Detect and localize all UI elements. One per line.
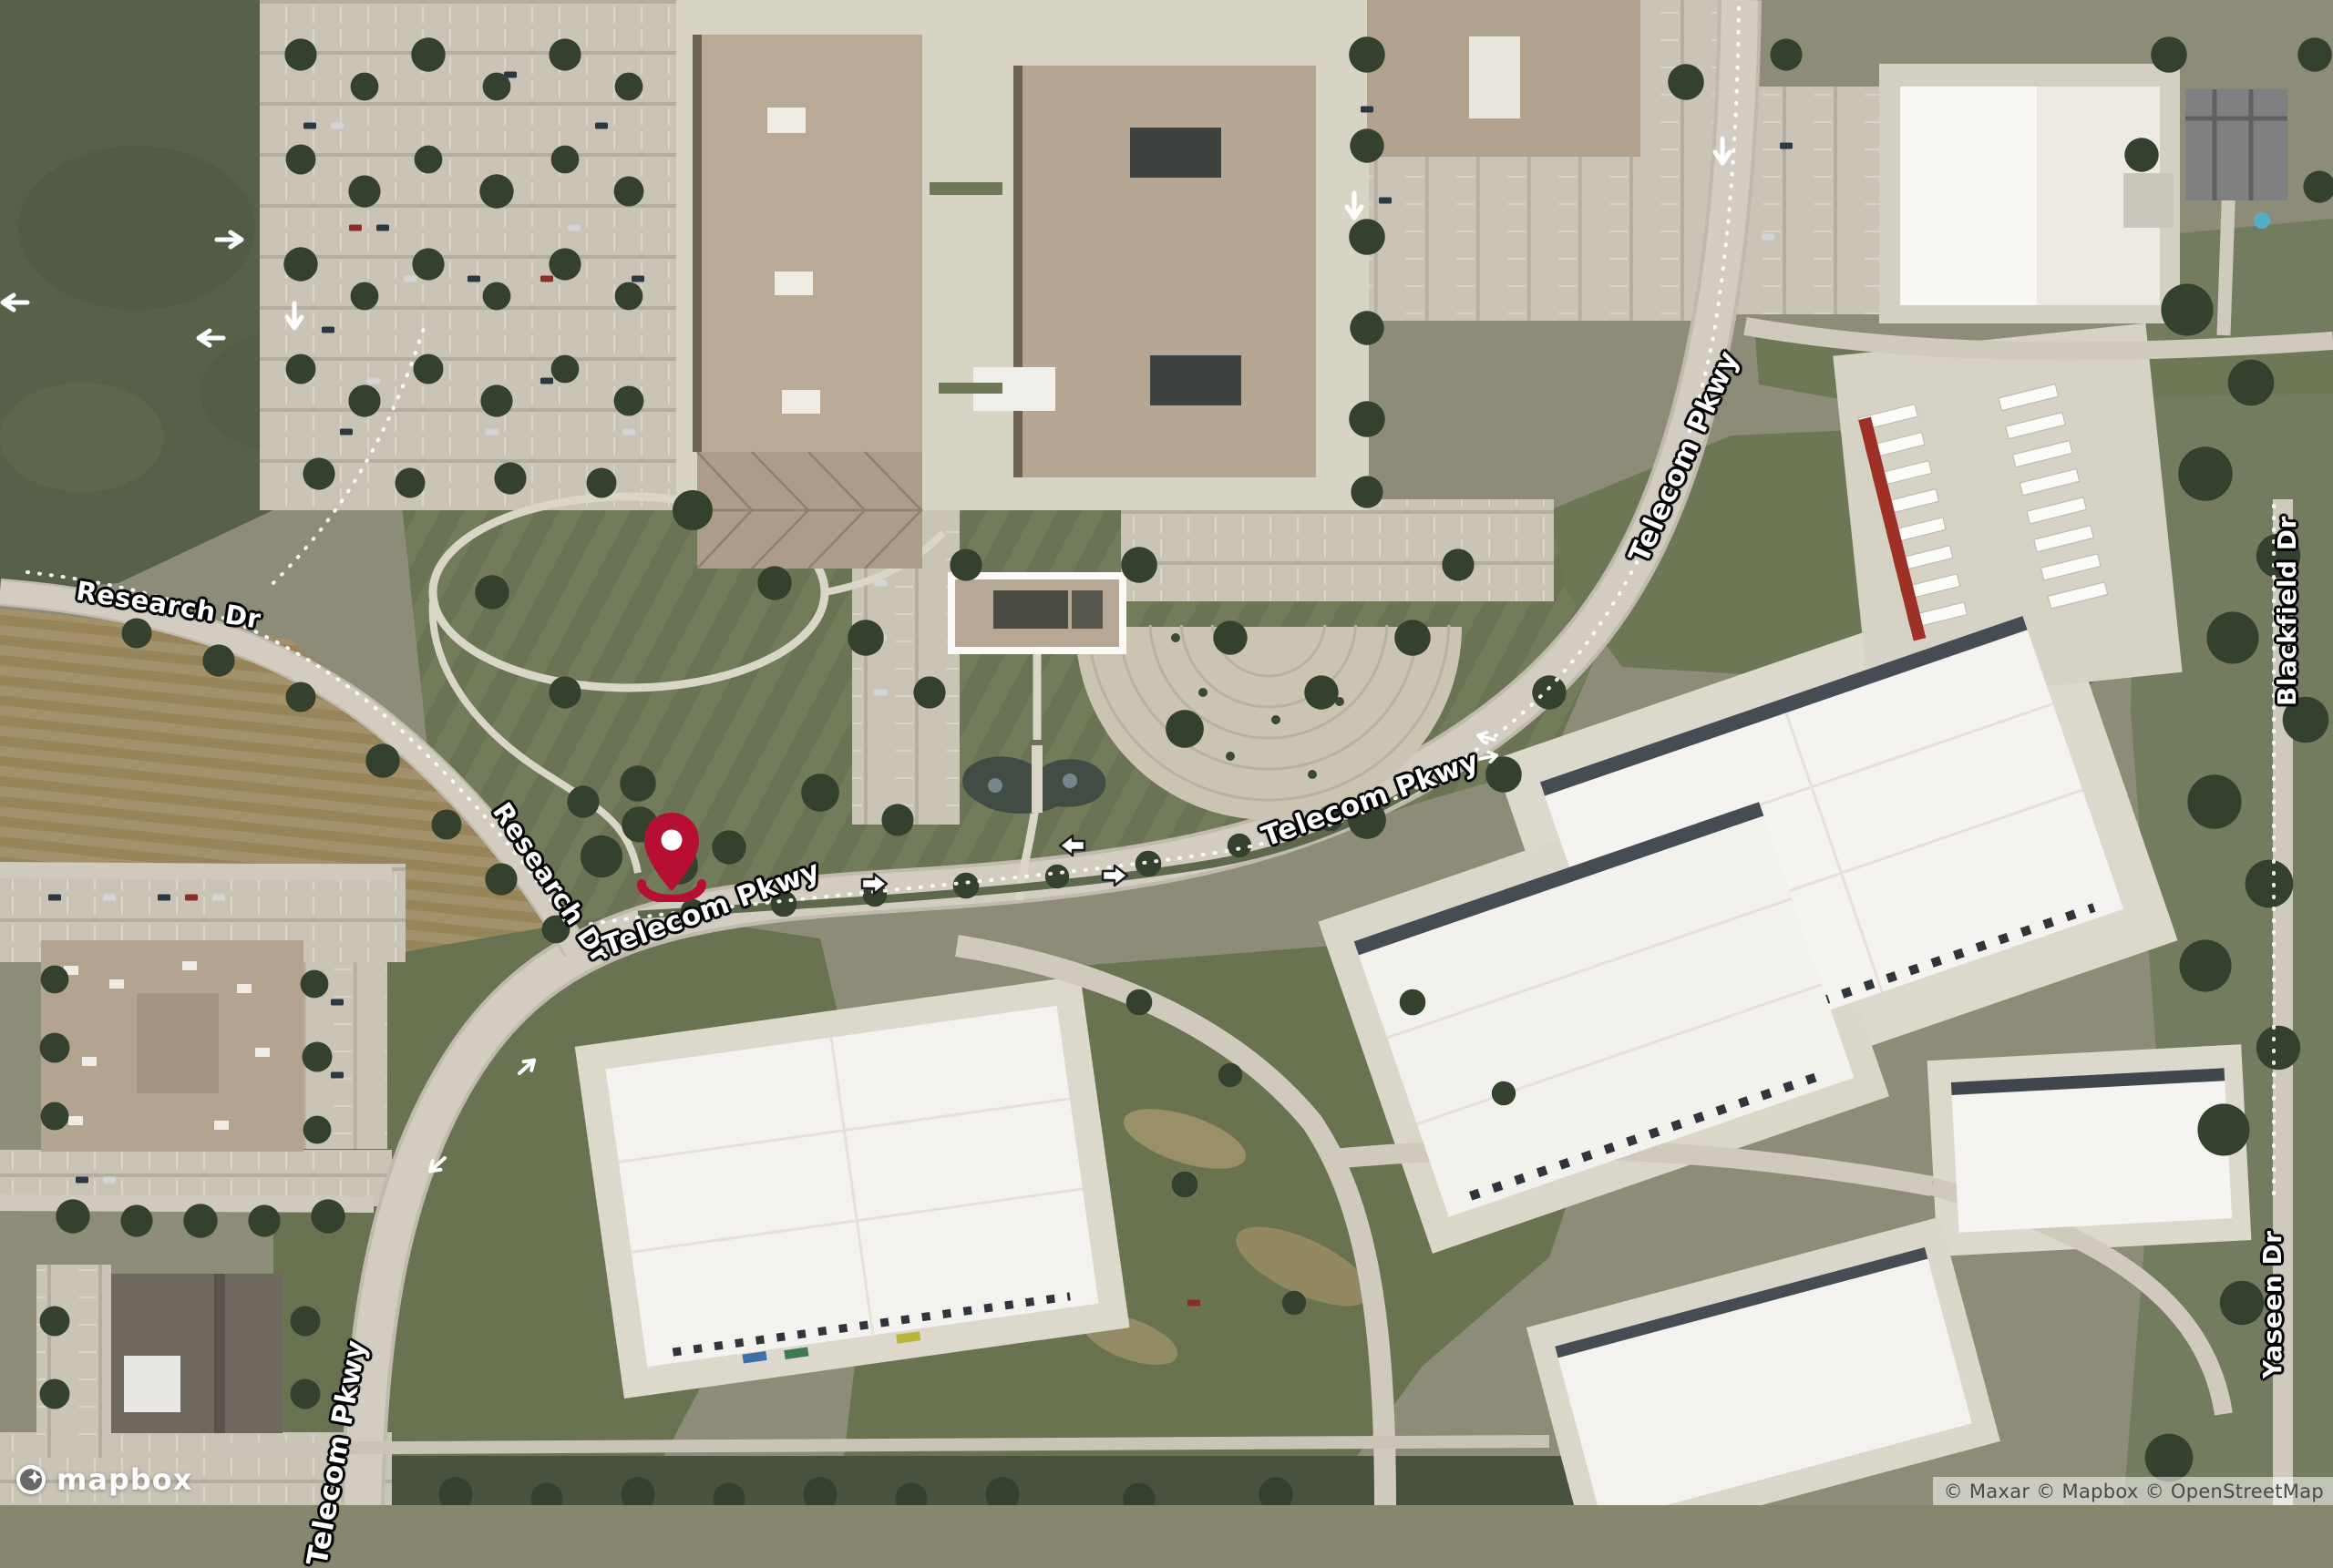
mapbox-logo-icon <box>15 1463 47 1496</box>
satellite-imagery-layer <box>0 0 2333 1505</box>
campus-center-building <box>948 572 1126 654</box>
warehouse-east-3 <box>1951 1068 2232 1232</box>
parking-lot-far-ne <box>1736 87 1891 314</box>
office-building-sw-2 <box>111 1274 283 1433</box>
map-viewport: { "branding": { "logo_text": "mapbox" },… <box>0 0 2333 1505</box>
parking-arc-north-of-amphitheater <box>1121 499 1554 601</box>
office-building-west-roof <box>693 35 922 452</box>
mapbox-logo[interactable]: mapbox <box>15 1463 192 1496</box>
road-south-frontage <box>228 1441 1549 1449</box>
attribution-text: © Maxar © Mapbox © OpenStreetMap <box>1944 1481 2324 1502</box>
marker-pin-hole <box>662 830 683 851</box>
fountain-1 <box>988 778 1002 793</box>
satellite-map-canvas[interactable]: Research Dr Research Dr Telecom Pkwy Tel… <box>0 0 2333 1505</box>
office-building-east-roof <box>1013 66 1316 477</box>
pond-bridge <box>1032 745 1043 813</box>
mapbox-logo-text: mapbox <box>57 1463 192 1496</box>
road-label-blackfield-dr: Blackfield Dr <box>2271 516 2304 706</box>
office-building-sw-1 <box>41 940 303 1152</box>
parking-lot-sw-4 <box>36 1265 111 1458</box>
swimming-pool <box>2254 212 2270 229</box>
map-attribution[interactable]: © Maxar © Mapbox © OpenStreetMap <box>1933 1477 2333 1505</box>
skylight-1 <box>1130 128 1221 178</box>
location-pin-marker[interactable] <box>632 807 711 902</box>
fountain-2 <box>1063 774 1077 788</box>
marker-pin-body <box>644 813 699 891</box>
skylight-2 <box>1150 355 1241 405</box>
road-label-yaseen-dr: Yaseen Dr <box>2256 1231 2289 1378</box>
